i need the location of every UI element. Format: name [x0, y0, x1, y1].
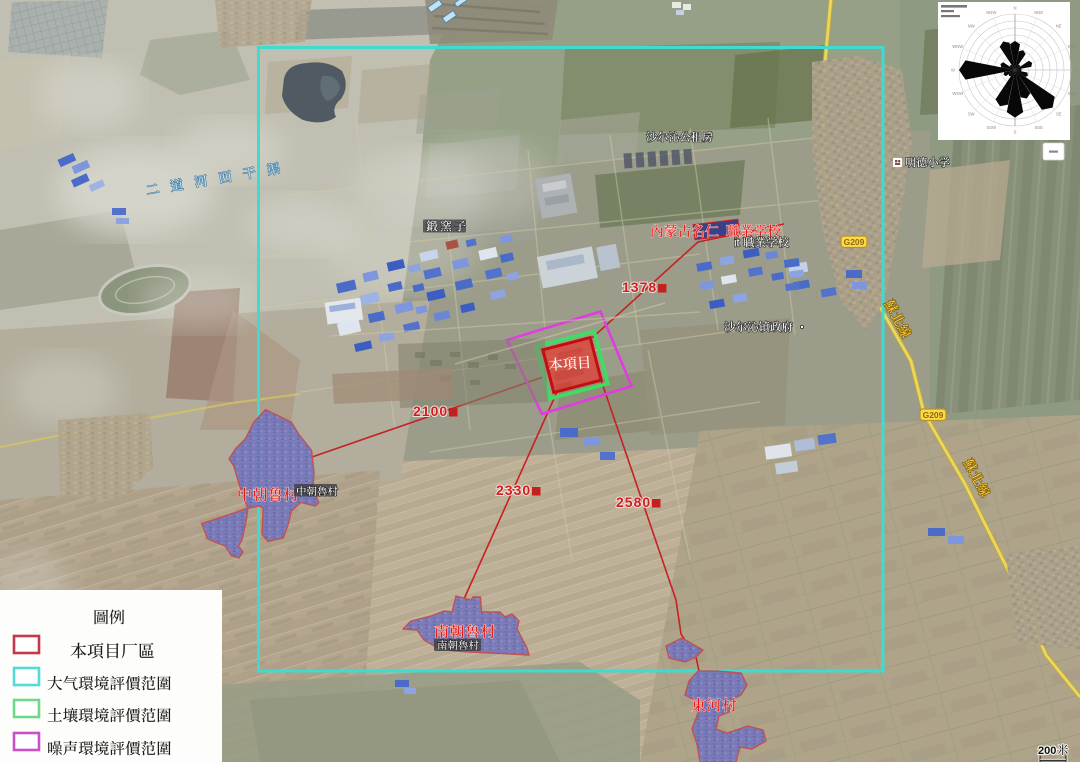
- svg-text:W: W: [951, 68, 955, 73]
- svg-text:NNE: NNE: [1034, 10, 1043, 15]
- svg-text:NNW: NNW: [986, 10, 996, 15]
- svg-text:WSW: WSW: [952, 91, 963, 96]
- svg-text:it: it: [734, 238, 741, 250]
- svg-text:SW: SW: [968, 111, 975, 116]
- svg-text:ENE: ENE: [1068, 44, 1077, 49]
- svg-text:200: 200: [1038, 745, 1056, 757]
- svg-text:E: E: [1076, 68, 1079, 73]
- svg-text:WNW: WNW: [952, 44, 963, 49]
- svg-text:NW: NW: [968, 24, 975, 29]
- svg-text:SSE: SSE: [1035, 125, 1044, 130]
- svg-text:G209: G209: [923, 410, 944, 420]
- svg-text:2580: 2580: [616, 494, 651, 510]
- svg-text:2100: 2100: [413, 403, 448, 419]
- svg-text:ESE: ESE: [1068, 91, 1077, 96]
- svg-text:NE: NE: [1056, 24, 1062, 29]
- svg-text:SE: SE: [1056, 111, 1062, 116]
- svg-text:S: S: [1014, 130, 1017, 135]
- svg-text:1378: 1378: [622, 279, 657, 295]
- svg-text:SSW: SSW: [987, 125, 997, 130]
- svg-text:G209: G209: [844, 237, 865, 247]
- svg-text:2330: 2330: [496, 482, 531, 498]
- svg-text:N: N: [1013, 6, 1016, 11]
